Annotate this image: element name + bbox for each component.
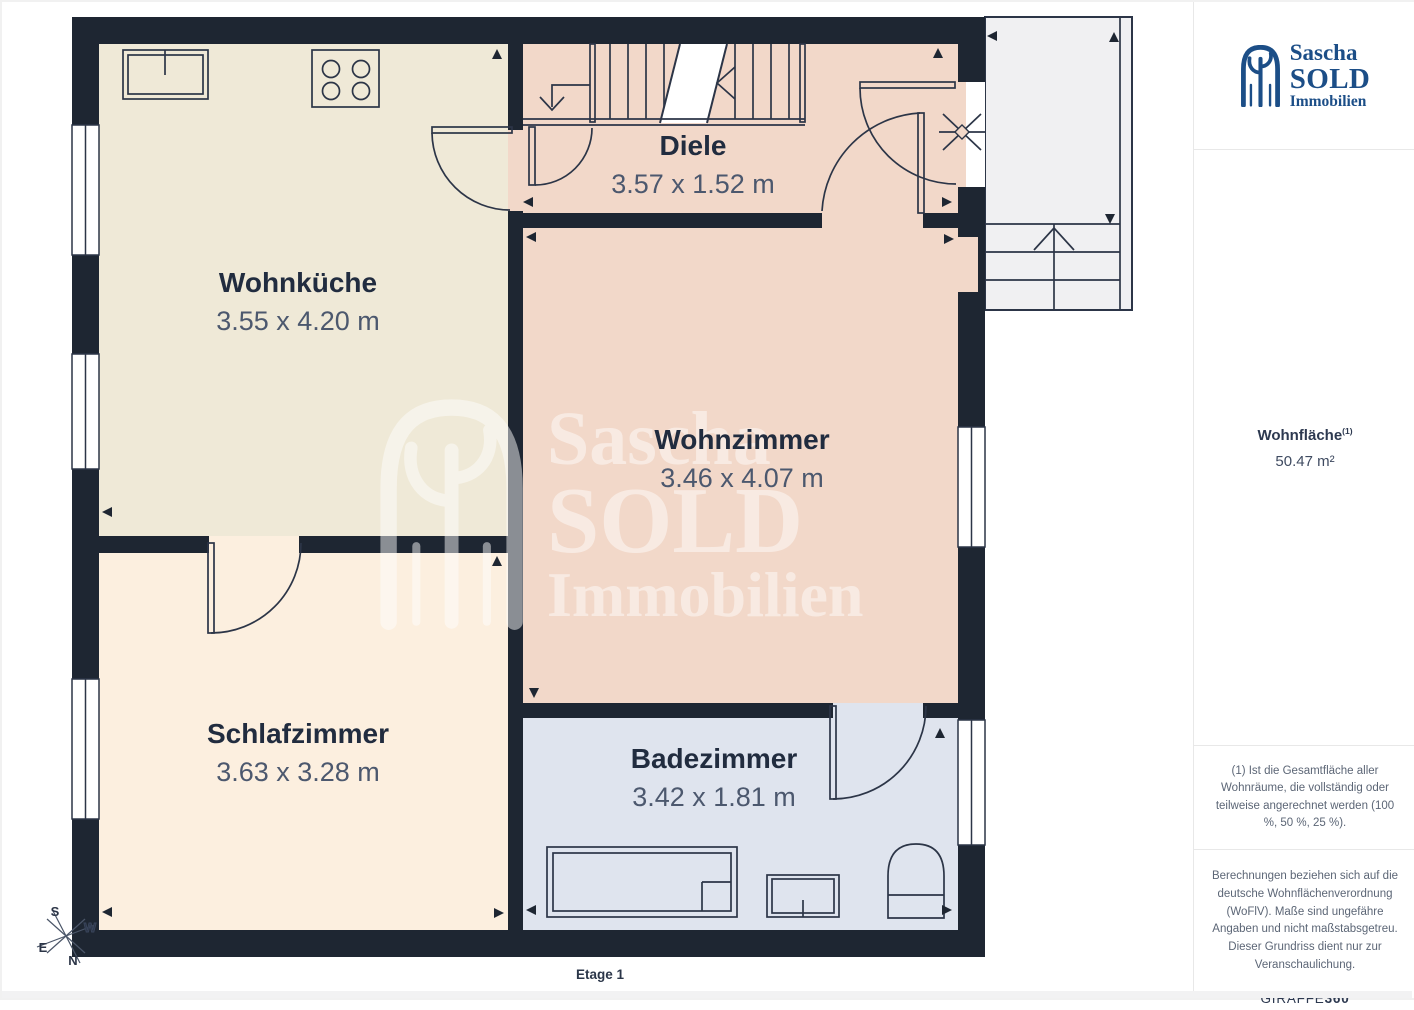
doorway-schlafzimmer (209, 536, 299, 553)
compass-n: N (68, 953, 77, 968)
room-label-diele: Diele (660, 130, 727, 161)
page-bottom-edge (2, 991, 1412, 998)
doorway-wohnzimmer-bad (833, 703, 923, 718)
brand-line2: SOLD (1290, 65, 1371, 95)
room-dim-badezimmer: 3.42 x 1.81 m (632, 782, 796, 812)
watermark-line3: Immobilien (547, 559, 863, 630)
exterior-landing (985, 17, 1132, 310)
room-label-schlafzimmer: Schlafzimmer (207, 718, 389, 749)
room-label-wohnzimmer: Wohnzimmer (654, 424, 829, 455)
room-dim-schlafzimmer: 3.63 x 3.28 m (216, 757, 380, 787)
front-doorway-threshold (966, 82, 985, 187)
living-area-value: 50.47 m² (1275, 453, 1334, 470)
room-label-wohnkueche: Wohnküche (219, 267, 377, 298)
window (958, 427, 985, 547)
compass-w: W (84, 920, 97, 935)
compass-s: S (51, 904, 60, 919)
window (958, 720, 985, 845)
living-area-label: Wohnfläche(1) (1257, 426, 1352, 444)
room-label-badezimmer: Badezimmer (631, 743, 798, 774)
brand-line1: Sascha (1290, 41, 1371, 64)
doorway-diele-wohnzimmer (822, 213, 923, 228)
footnote-text: (1) Ist die Gesamtfläche aller Wohnräume… (1194, 746, 1414, 850)
logo-tree-icon (1240, 45, 1281, 107)
disclaimer-text: Berechnungen beziehen sich auf die deuts… (1210, 868, 1400, 975)
window (72, 125, 99, 255)
brand-wordmark: Sascha SOLD Immobilien (1290, 41, 1371, 110)
window (72, 354, 99, 469)
room-dim-diele: 3.57 x 1.52 m (611, 169, 775, 199)
floorplan-page: { "page": { "floor_label": "Etage 1" }, … (0, 0, 1414, 1000)
floor-label: Etage 1 (576, 967, 625, 982)
room-dim-wohnkueche: 3.55 x 4.20 m (216, 306, 380, 336)
compass-e: E (39, 940, 48, 955)
doorway-kueche-diele (508, 130, 523, 211)
room-dim-wohnzimmer: 3.46 x 4.07 m (660, 463, 824, 493)
living-area-section: Wohnfläche(1) 50.47 m² (1194, 150, 1414, 746)
brand-logo: Sascha SOLD Immobilien (1194, 2, 1414, 150)
sidebar: Sascha SOLD Immobilien Wohnfläche(1) 50.… (1193, 2, 1414, 998)
wall-niche (958, 237, 978, 292)
footnote-marker: (1) (1342, 426, 1352, 436)
floor-plan: Sascha SOLD Immobilien Wohnküche 3.55 x … (2, 2, 1193, 1002)
window (72, 679, 99, 819)
brand-line3: Immobilien (1290, 94, 1371, 110)
disclaimer-section: Berechnungen beziehen sich auf die deuts… (1194, 850, 1414, 1010)
